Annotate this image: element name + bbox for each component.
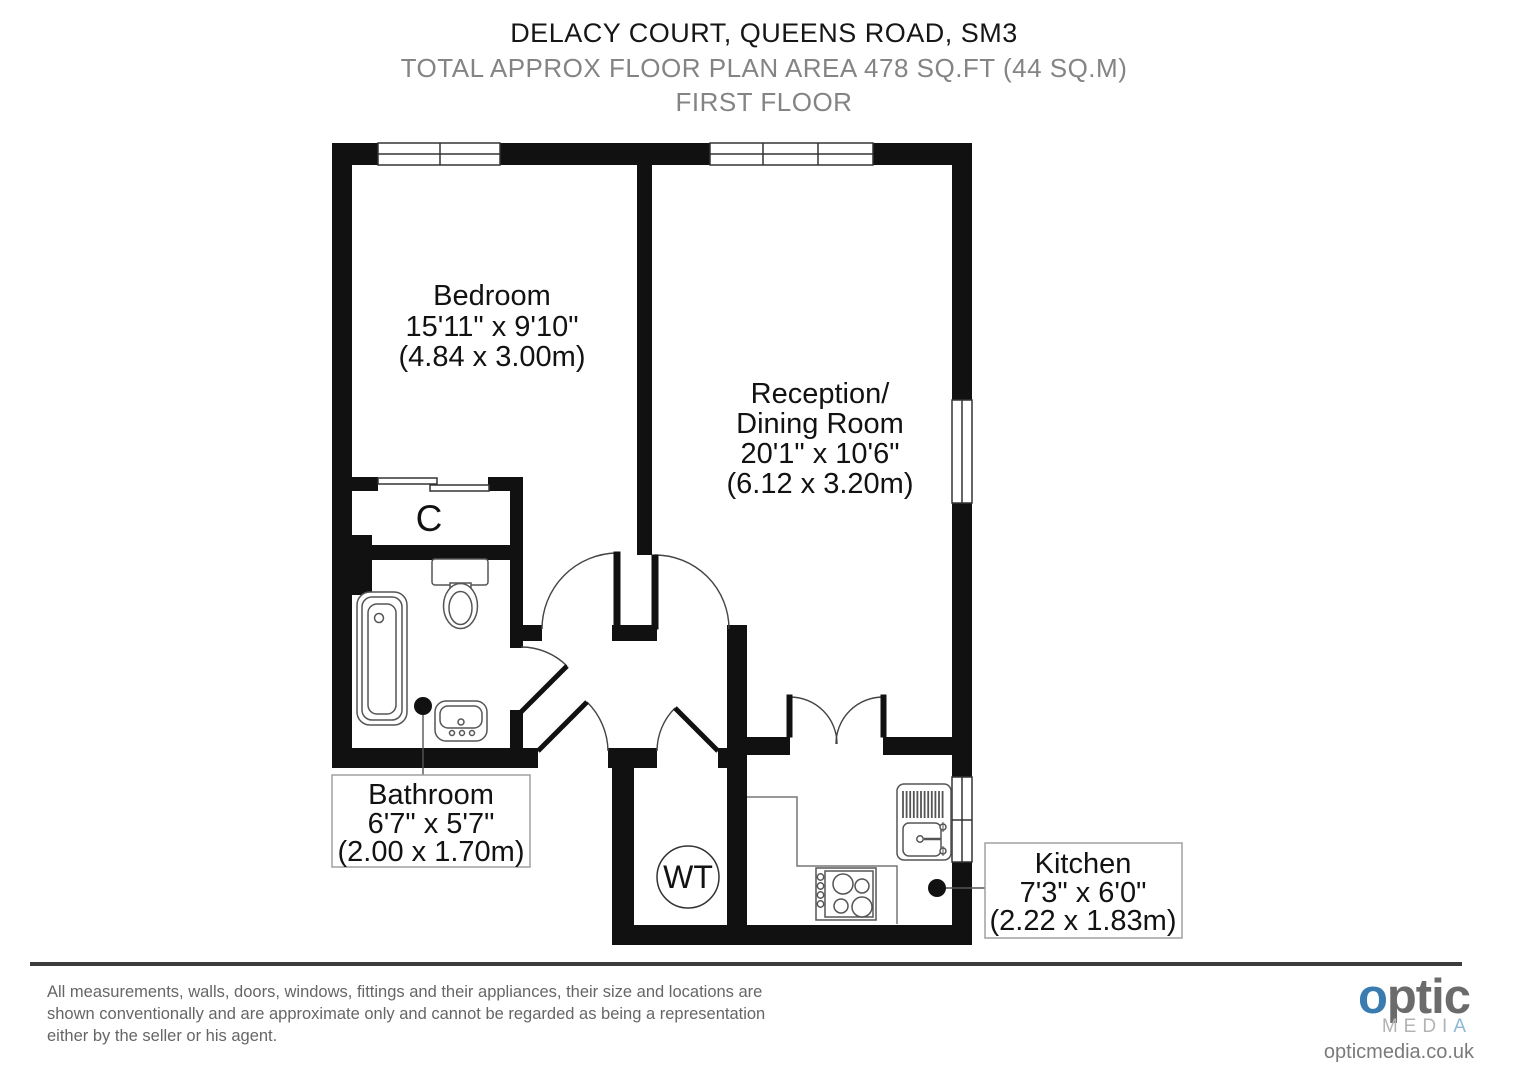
wall-slide-stub-left bbox=[352, 477, 378, 491]
bedroom-door-leaf bbox=[614, 552, 620, 627]
wall-left bbox=[332, 165, 352, 766]
page-subtitle: TOTAL APPROX FLOOR PLAN AREA 478 SQ.FT (… bbox=[0, 53, 1528, 84]
wall-kitchen-top-left bbox=[747, 737, 790, 755]
room-labels: Bedroom 15'11" x 9'10" (4.84 x 3.00m) Re… bbox=[399, 280, 914, 539]
wt-door-arc bbox=[657, 708, 675, 751]
wall-hall-reception-divider bbox=[727, 625, 747, 945]
hob-burner bbox=[855, 879, 869, 893]
wall-right-upper bbox=[952, 165, 972, 400]
disclaimer-line: either by the seller or his agent. bbox=[47, 1025, 765, 1047]
bathroom-door-leaf bbox=[521, 666, 567, 712]
hob-burner bbox=[833, 874, 853, 894]
kitchen-door-right-arc bbox=[836, 697, 883, 744]
floor-label: FIRST FLOOR bbox=[0, 87, 1528, 118]
window-kitchen bbox=[952, 777, 972, 862]
wall-kitchen-top-right bbox=[883, 737, 952, 755]
kitchen-dims-m: (2.22 x 1.83m) bbox=[990, 905, 1177, 937]
window-reception-top bbox=[710, 143, 873, 165]
logo-media-a: A bbox=[1453, 1016, 1472, 1037]
bathroom-callout-dot bbox=[414, 697, 432, 715]
wall-hall-north-left bbox=[510, 625, 542, 641]
basin bbox=[435, 701, 487, 741]
bedroom-name: Bedroom bbox=[433, 280, 551, 312]
kitchen-door-left-leaf bbox=[787, 695, 792, 737]
hob-knob bbox=[817, 901, 823, 907]
wall-bottom bbox=[612, 925, 972, 945]
wall-cupboard-bottom bbox=[352, 545, 522, 560]
wall-bathroom-bottom bbox=[332, 748, 538, 768]
wall-left-block bbox=[332, 535, 372, 595]
wt-door-leaf bbox=[675, 708, 718, 751]
disclaimer-line: All measurements, walls, doors, windows,… bbox=[47, 981, 765, 1003]
wall-top-left bbox=[332, 143, 378, 165]
bathroom-door-arc bbox=[521, 647, 567, 666]
toilet bbox=[432, 559, 488, 629]
reception-door-leaf bbox=[652, 555, 658, 629]
reception-dims-ft: 20'1" x 10'6" bbox=[740, 438, 899, 470]
window-reception-right bbox=[952, 400, 972, 503]
wall-bedroom-reception-divider bbox=[637, 165, 652, 555]
wall-top-mid bbox=[500, 143, 710, 165]
cupboard-label: C bbox=[416, 498, 443, 539]
bathroom-name: Bathroom bbox=[368, 779, 494, 811]
window-bedroom bbox=[378, 143, 500, 165]
sliding-door-cupboard bbox=[378, 478, 489, 491]
bedroom-dims-m: (4.84 x 3.00m) bbox=[399, 341, 586, 373]
hob-burner bbox=[852, 897, 872, 917]
sink-tap-hole bbox=[917, 836, 923, 842]
logo-media-text: MEDI bbox=[1382, 1016, 1454, 1037]
wall-top-right bbox=[873, 143, 972, 165]
bathroom-label-box: Bathroom 6'7" x 5'7" (2.00 x 1.70m) bbox=[332, 775, 530, 868]
water-tank-label: WT bbox=[663, 859, 713, 895]
header: DELACY COURT, QUEENS ROAD, SM3 TOTAL APP… bbox=[0, 18, 1528, 118]
toilet-cistern bbox=[432, 559, 488, 585]
wall-cupboard-right bbox=[510, 477, 523, 648]
hob bbox=[816, 868, 876, 920]
entrance-door-leaf bbox=[538, 702, 587, 751]
entrance-door-arc bbox=[587, 702, 608, 751]
reception-name1: Reception/ bbox=[751, 378, 891, 410]
kitchen-label-box: Kitchen 7'3" x 6'0" (2.22 x 1.83m) bbox=[985, 843, 1182, 938]
bedroom-door-arc bbox=[542, 553, 617, 629]
wall-hall-south-corner bbox=[718, 748, 747, 768]
floorplan-drawing: WT Bedroom 15'11" x 9'10" (4.84 x 3.00m)… bbox=[0, 0, 1528, 1080]
wall-right-mid bbox=[952, 503, 972, 777]
bathtub-drain bbox=[375, 614, 384, 623]
wall-bathroom-right-lower bbox=[510, 710, 523, 750]
hob-knob bbox=[817, 892, 823, 898]
reception-name2: Dining Room bbox=[736, 408, 904, 440]
door-arcs bbox=[521, 553, 883, 751]
kitchen-door-right-leaf bbox=[881, 695, 886, 737]
logo-media: MEDIA bbox=[1382, 1016, 1474, 1038]
hob-knob bbox=[817, 883, 823, 889]
sink-unit bbox=[897, 784, 951, 860]
kitchen-fixtures bbox=[747, 784, 951, 924]
kitchen-door-left-arc bbox=[790, 697, 837, 744]
reception-dims-m: (6.12 x 3.20m) bbox=[727, 468, 914, 500]
doors bbox=[521, 552, 886, 751]
hob-burner bbox=[834, 899, 848, 913]
kitchen-name: Kitchen bbox=[1035, 848, 1132, 880]
logo-url: opticmedia.co.uk bbox=[1324, 1041, 1474, 1064]
page-title: DELACY COURT, QUEENS ROAD, SM3 bbox=[0, 18, 1528, 49]
wall-wt-left bbox=[612, 748, 634, 945]
bedroom-dims-ft: 15'11" x 9'10" bbox=[405, 311, 578, 343]
floorplan-page: DELACY COURT, QUEENS ROAD, SM3 TOTAL APP… bbox=[0, 0, 1528, 1080]
reception-door-arc bbox=[655, 555, 729, 629]
logo-wordmark: optic bbox=[1358, 974, 1474, 1020]
kitchen-callout-dot bbox=[928, 879, 946, 897]
disclaimer: All measurements, walls, doors, windows,… bbox=[47, 981, 765, 1047]
hob-knob bbox=[817, 874, 823, 880]
bathtub bbox=[357, 592, 407, 725]
bathroom-dims-m: (2.00 x 1.70m) bbox=[338, 836, 525, 868]
optic-media-logo: optic MEDIA opticmedia.co.uk bbox=[1318, 974, 1474, 1064]
footer-divider bbox=[30, 962, 1462, 966]
disclaimer-line: shown conventionally and are approximate… bbox=[47, 1003, 765, 1025]
